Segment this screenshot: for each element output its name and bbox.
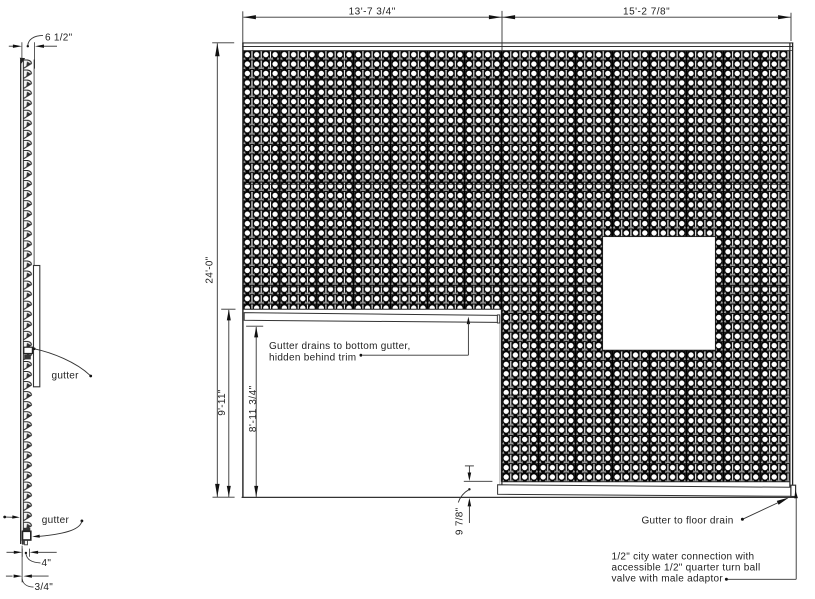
- svg-text:9'-11": 9'-11": [217, 389, 228, 416]
- svg-text:3/4": 3/4": [35, 582, 54, 593]
- svg-text:valve with male adaptor: valve with male adaptor: [612, 573, 724, 584]
- svg-text:hidden behind trim: hidden behind trim: [269, 352, 356, 363]
- svg-text:9 7/8": 9 7/8": [454, 507, 465, 535]
- svg-text:6 1/2": 6 1/2": [45, 32, 73, 43]
- svg-text:24'-0": 24'-0": [205, 256, 216, 283]
- svg-text:4": 4": [42, 558, 52, 569]
- svg-text:Gutter to floor drain: Gutter to floor drain: [642, 516, 734, 527]
- svg-text:13'-7 3/4": 13'-7 3/4": [349, 7, 396, 18]
- svg-text:15'-2 7/8": 15'-2 7/8": [623, 7, 670, 18]
- svg-text:gutter: gutter: [42, 515, 70, 526]
- svg-text:gutter: gutter: [52, 370, 80, 381]
- svg-text:accessible 1/2" quarter turn b: accessible 1/2" quarter turn ball: [612, 563, 761, 574]
- svg-text:1/2" city water connection wit: 1/2" city water connection with: [612, 552, 755, 563]
- svg-text:Gutter drains to bottom gutter: Gutter drains to bottom gutter,: [269, 341, 411, 352]
- svg-text:8'-11 3/4": 8'-11 3/4": [248, 385, 259, 432]
